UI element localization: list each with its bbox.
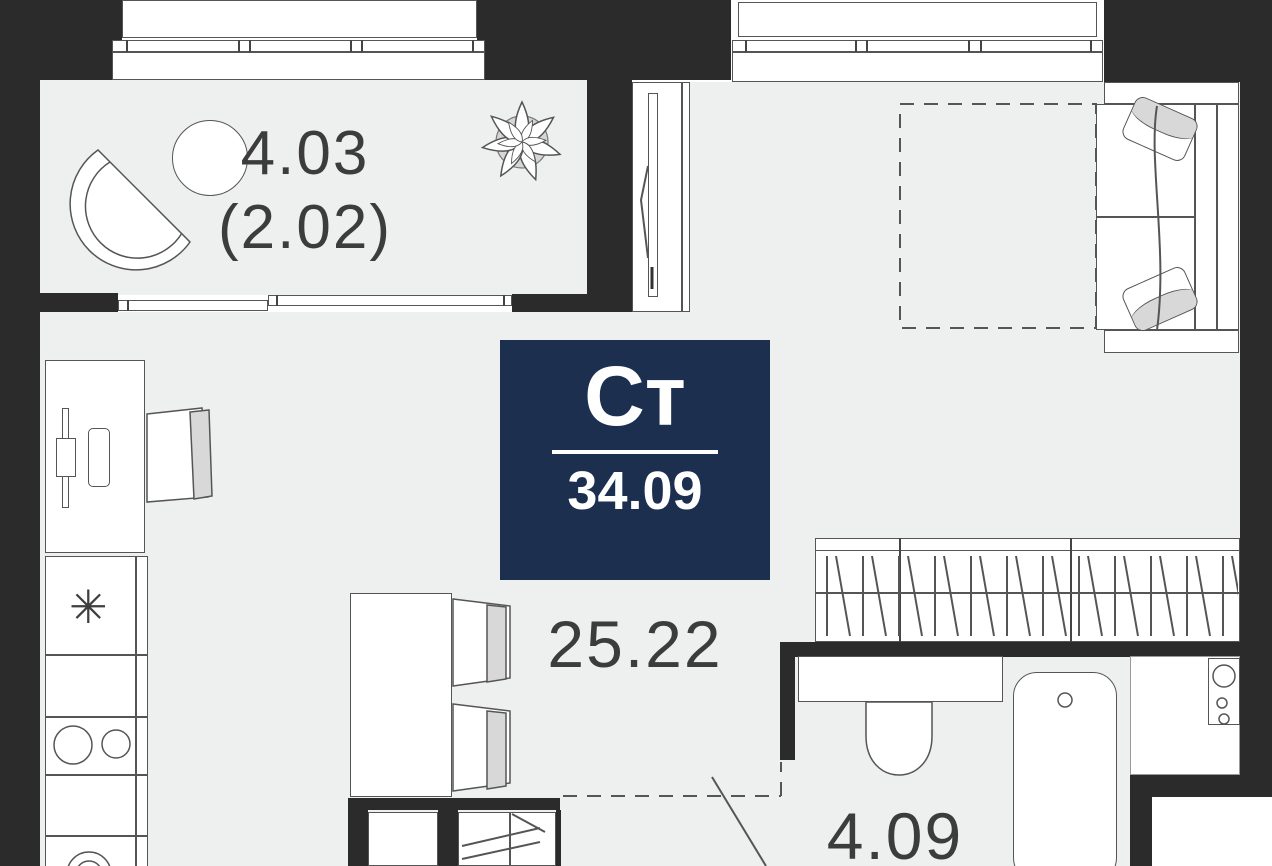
wardrobe-divider	[899, 538, 901, 642]
kitchen-cabinet	[45, 775, 148, 836]
wall-segment	[348, 810, 368, 866]
bathroom-counter	[798, 656, 1003, 702]
balcony-slab	[122, 0, 477, 38]
entrance-door-panel	[648, 93, 658, 297]
balcony-door-window	[268, 295, 512, 306]
window-mullion	[745, 40, 747, 52]
wardrobe	[815, 550, 1240, 642]
wall-segment	[512, 294, 632, 312]
unit-type-badge: Ст 34.09	[500, 340, 770, 580]
snowflake-icon: ✳	[69, 584, 108, 630]
window-mullion	[126, 40, 128, 52]
balcony-door-window	[118, 300, 268, 311]
closet-hatched	[458, 812, 556, 866]
window-mullion	[855, 40, 857, 52]
unit-total-area: 34.09	[500, 464, 770, 518]
window-mullion	[866, 40, 868, 52]
wall-segment	[477, 0, 731, 80]
bathtub	[1013, 672, 1117, 866]
balcony-area-secondary-label: (2.02)	[195, 192, 415, 263]
sink-cabinet	[45, 836, 148, 866]
window-sill-right	[732, 52, 1103, 82]
window-mullion	[980, 40, 982, 52]
kitchen-cabinet	[45, 655, 148, 717]
wall-segment	[587, 80, 632, 312]
window-mullion	[968, 40, 970, 52]
window-mullion	[350, 40, 352, 52]
dining-table	[350, 593, 452, 797]
window-mullion	[127, 300, 129, 311]
window-mullion	[276, 295, 278, 306]
desk-keyboard	[88, 428, 110, 487]
wall-segment	[438, 810, 458, 866]
wall-segment	[348, 798, 560, 810]
window-mullion	[249, 40, 251, 52]
window-mullion	[503, 295, 505, 306]
wall-segment	[1240, 82, 1272, 775]
cooktop	[45, 717, 148, 775]
wall-segment	[556, 810, 561, 866]
wall-segment	[0, 0, 40, 866]
wall-segment	[40, 0, 122, 80]
window-mullion	[472, 40, 474, 52]
window-mullion	[238, 40, 240, 52]
floor-plan: ✳	[0, 0, 1272, 866]
unit-type-label: Ст	[500, 354, 770, 438]
sofa-backrest	[1217, 104, 1239, 330]
wall-segment	[780, 642, 795, 760]
window-band-right	[732, 40, 1103, 52]
bathroom-area-label: 4.09	[810, 798, 980, 866]
closet	[368, 812, 438, 866]
entrance-door-frame	[682, 82, 690, 312]
living-area-label: 25.22	[540, 606, 730, 682]
desk-monitor-stand	[56, 438, 76, 477]
window-band-left	[112, 40, 485, 52]
wall-segment	[1104, 0, 1272, 82]
wall-segment	[40, 293, 118, 312]
wall-segment	[1130, 775, 1152, 866]
window-mullion	[361, 40, 363, 52]
window-mullion	[1090, 40, 1092, 52]
sofa-backrest	[1195, 104, 1217, 330]
window-sill-left	[112, 52, 485, 80]
utility-panel	[1208, 658, 1240, 725]
balcony-area-label: 4.03	[205, 118, 405, 189]
badge-divider	[552, 450, 718, 454]
wall-segment	[795, 642, 1272, 657]
sofa-armrest	[1104, 82, 1239, 104]
sofa-armrest	[1104, 330, 1239, 353]
wardrobe-divider	[1070, 538, 1072, 642]
balcony-slab	[738, 2, 1097, 37]
